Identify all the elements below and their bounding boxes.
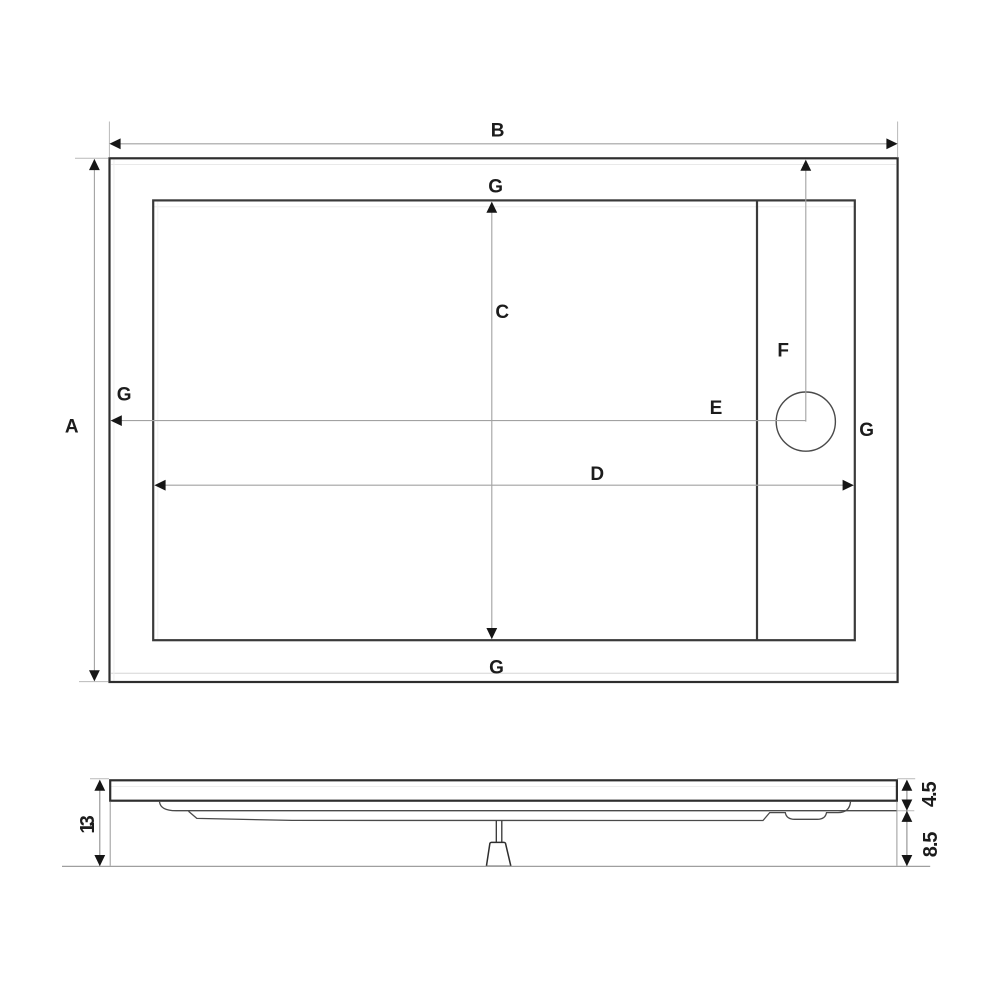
svg-text:8.5: 8.5 xyxy=(920,832,942,858)
svg-text:F: F xyxy=(777,340,789,361)
svg-text:C: C xyxy=(495,302,509,323)
svg-text:A: A xyxy=(65,417,79,438)
svg-text:B: B xyxy=(491,121,505,142)
svg-text:G: G xyxy=(859,420,874,441)
svg-text:G: G xyxy=(488,176,503,197)
svg-text:E: E xyxy=(710,398,723,419)
svg-text:G: G xyxy=(117,384,132,405)
svg-text:13: 13 xyxy=(77,815,99,834)
svg-text:D: D xyxy=(590,464,604,485)
svg-text:G: G xyxy=(489,657,504,678)
svg-text:4.5: 4.5 xyxy=(919,781,941,807)
